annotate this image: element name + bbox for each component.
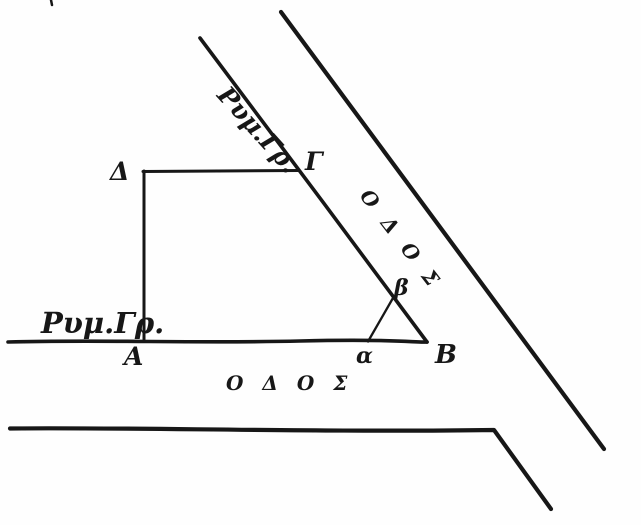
aux-line-alpha-beta	[368, 298, 393, 342]
point-label-gamma: Γ	[304, 147, 325, 176]
road-name-horizontal: Ο Δ Ο Σ	[226, 371, 353, 395]
lower-road-edge-line	[10, 428, 551, 509]
point-label-beta-cap: Β	[434, 340, 457, 370]
survey-sketch-page: Δ Γ Α Β α β Ρυμ.Γρ. Ρυμ.Γρ. Ο Δ Ο Σ Ο Δ …	[0, 0, 641, 525]
ink-speck	[51, 0, 52, 5]
point-label-delta: Δ	[108, 157, 129, 186]
plot-diagram-svg: Δ Γ Α Β α β Ρυμ.Γρ. Ρυμ.Γρ. Ο Δ Ο Σ Ο Δ …	[0, 0, 641, 525]
point-label-alpha-small: α	[356, 343, 373, 369]
building-line-label-diagonal: Ρυμ.Γρ.	[211, 80, 304, 179]
horizontal-road-line	[8, 340, 427, 342]
building-line-label-horizontal: Ρυμ.Γρ.	[40, 306, 164, 340]
point-label-alpha-cap: Α	[122, 342, 143, 371]
point-label-beta-small: β	[393, 275, 409, 301]
